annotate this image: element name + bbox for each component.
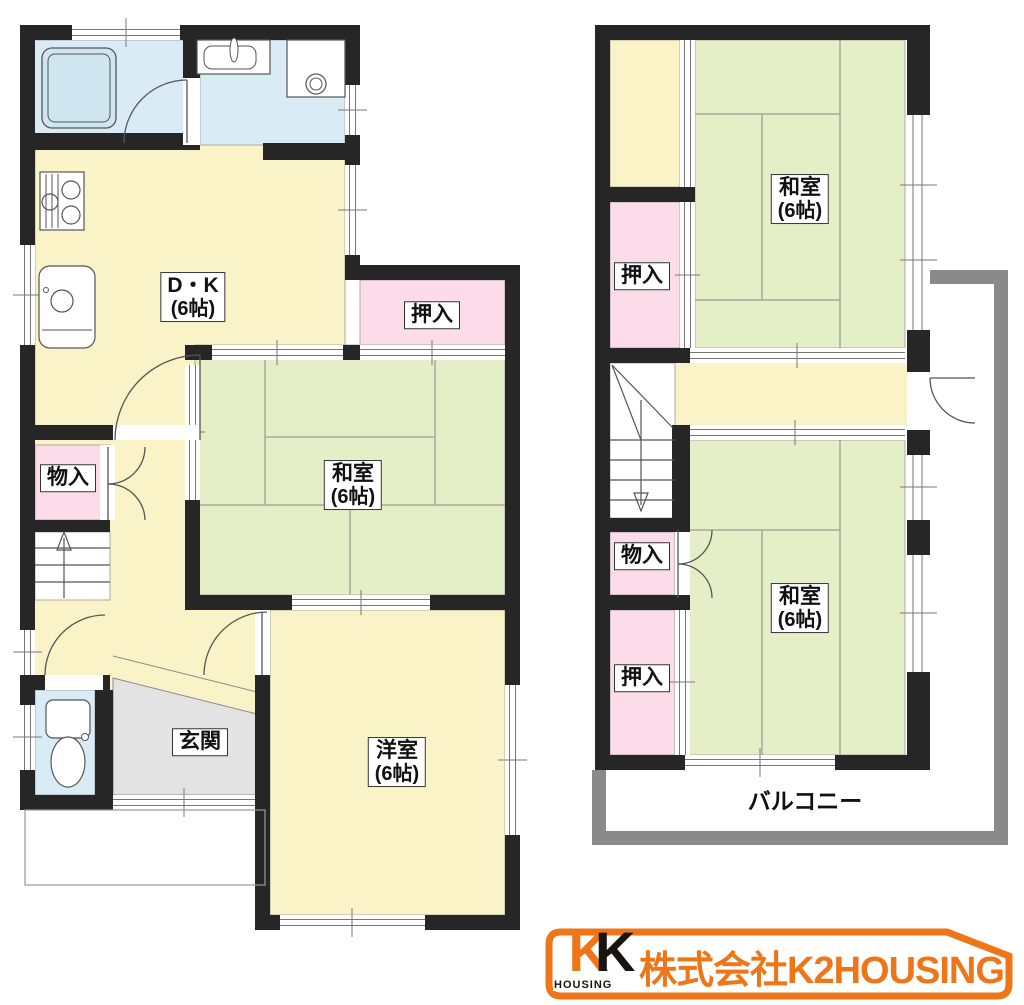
hall-2f-upper	[610, 40, 680, 187]
window-washitsu-south-right-lower-2f	[900, 555, 937, 672]
logo-housing-caption: HOUSING	[553, 979, 613, 991]
room-label-monoire-2f: 物入	[614, 542, 670, 570]
floor-plan-page: D・K (6帖) 押入 和室 (6帖) 物入 玄関 洋室 (6帖) 和室 (6帖…	[0, 0, 1024, 1005]
kitchen-sink	[39, 266, 95, 348]
logo-k2: K	[595, 920, 621, 983]
room-label-genkan: 玄関	[172, 728, 228, 756]
balcony-door-arc	[930, 378, 975, 423]
floor-plan-drawing	[0, 0, 1024, 1005]
stove	[40, 172, 84, 230]
window-washitsu-south-right-upper-2f	[900, 455, 937, 520]
company-logo: KK HOUSING 株式会社K2HOUSING	[543, 923, 1015, 1003]
bathtub	[42, 48, 116, 128]
washing-machine-pan	[287, 40, 345, 97]
company-name: 株式会社K2HOUSING	[639, 939, 1007, 994]
room-label-oshiire-2f-north: 押入	[614, 262, 670, 290]
room-label-washitsu-2f-south: 和室 (6帖)	[771, 583, 829, 633]
room-label-oshiire-2f-south: 押入	[614, 664, 670, 692]
logo-kk-mark: KK HOUSING	[555, 923, 635, 993]
hall-2f	[675, 363, 907, 425]
room-label-dk: D・K (6帖)	[160, 272, 225, 322]
room-label-washitsu-2f-north: 和室 (6帖)	[771, 174, 829, 224]
stairs-1f-area	[35, 532, 110, 600]
window-washitsu-north-right-2f	[900, 115, 937, 330]
room-label-youshitsu: 洋室 (6帖)	[368, 737, 426, 787]
room-label-washitsu-1f: 和室 (6帖)	[324, 460, 382, 510]
porch-outline	[25, 810, 265, 885]
logo-k1: K	[569, 920, 595, 983]
room-label-oshiire-1f: 押入	[404, 301, 460, 329]
vanity-sink	[197, 38, 270, 74]
room-label-monoire-1f: 物入	[40, 464, 96, 492]
floor2-room-fills	[610, 40, 907, 755]
room-label-balcony: バルコニー	[748, 782, 863, 816]
